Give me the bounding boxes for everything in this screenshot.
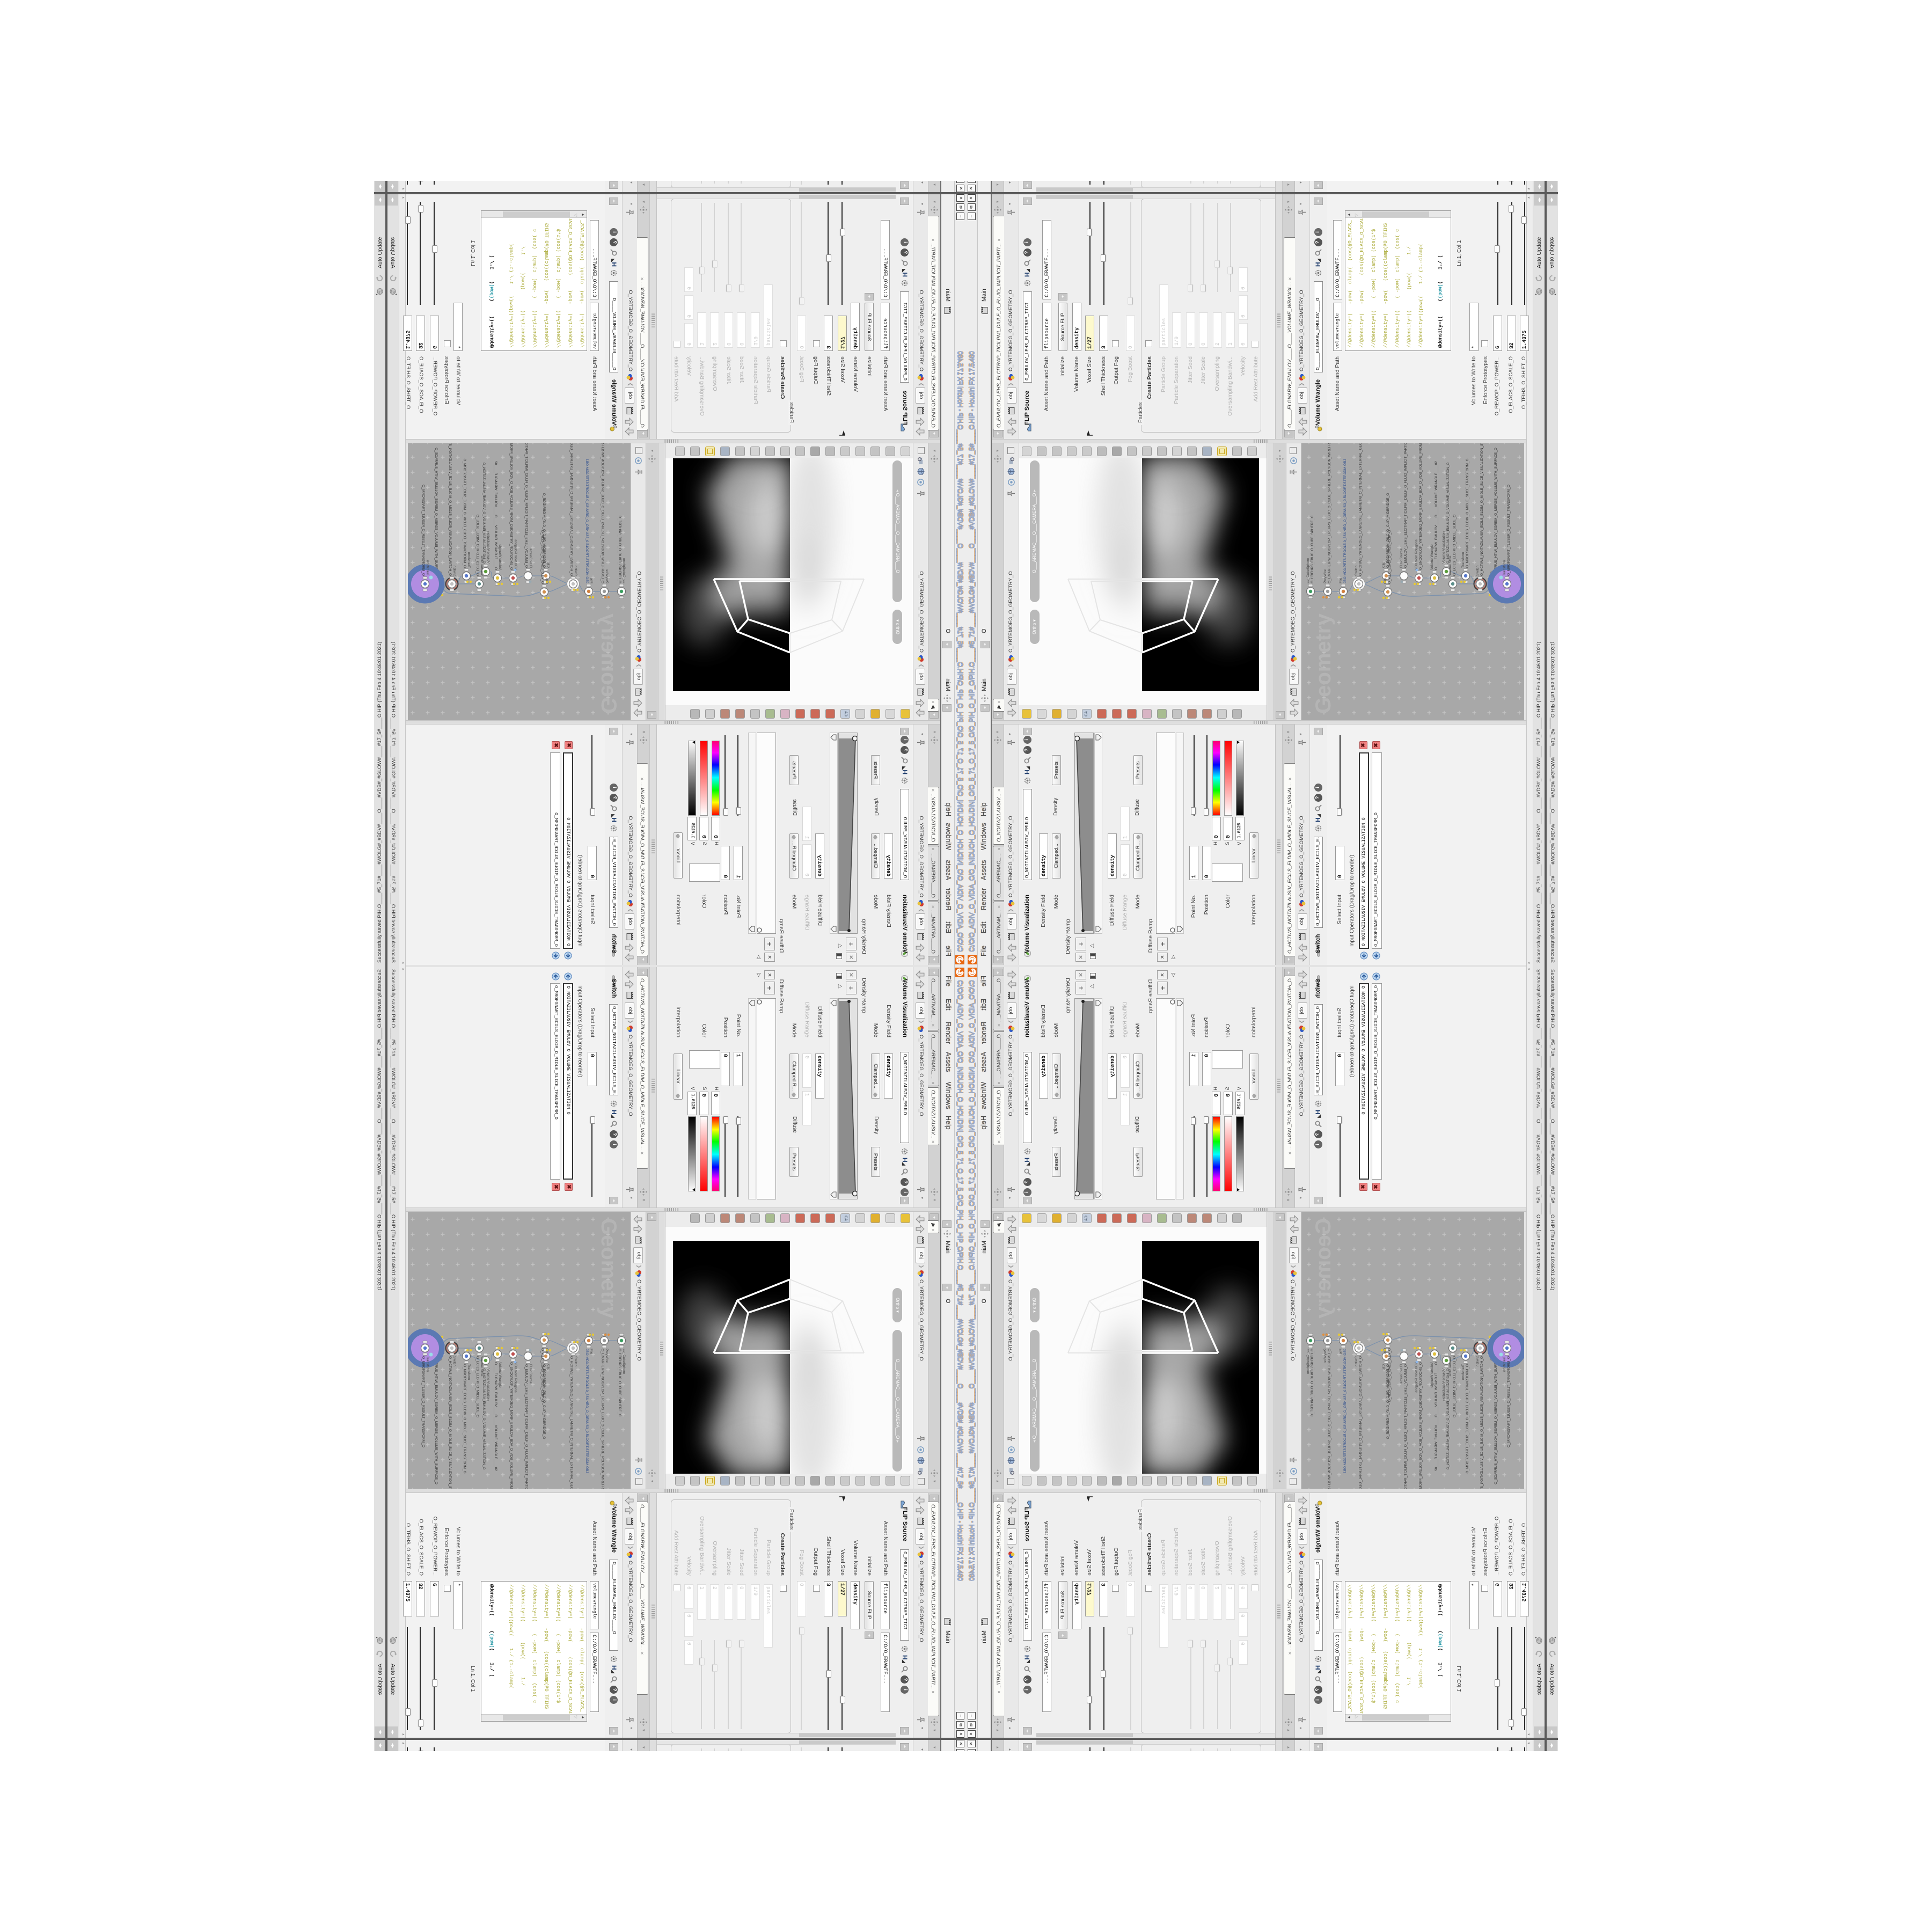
svg-text:Clip: Clip [1384,1348,1387,1355]
svg-text:O____ELGNARW_EMULOV____O____VO: O____ELGNARW_EMULOV____O____VOLUME_WRANG… [494,1362,497,1471]
svg-text:O_ECAFRUS_HTIW_EMULOV_EGREM_O_: O_ECAFRUS_HTIW_EMULOV_EGREM_O_MERGE_VOLU… [434,448,438,581]
svg-text:Transform: Transform [1503,560,1506,576]
svg-text:Volume Visualization: Volume Visualization [1442,1368,1446,1401]
svg-text:O_EMULOV_LEHS_ELCITRAP_TICILPM: O_EMULOV_LEHS_ELCITRAP_TICILPMI_DIULF_O_… [1404,1364,1408,1489]
svg-text:Switch: Switch [1476,1356,1480,1367]
svg-text:JBO.MD3.PETS.TRGOL5.0_3SUNEG_O: JBO.MD3.PETS.TRGOL5.0_3SUNEG_O_GENUS3_0.… [1343,1349,1347,1473]
svg-text:Volume Visualization: Volume Visualization [486,531,490,563]
svg-text:Switch: Switch [1476,565,1480,576]
svg-text:Transform: Transform [426,1356,429,1372]
svg-text:Geometry: Geometry [1312,1218,1335,1319]
svg-text:Switch: Switch [452,565,456,576]
svg-text:Switch: Switch [574,565,577,576]
svg-text:VDB from Polygons: VDB from Polygons [1415,539,1418,570]
svg-text:O_NOITAZILAUSIV_EMULOV_O_VOLUM: O_NOITAZILAUSIV_EMULOV_O_VOLUME_VISUALIZ… [1446,463,1450,563]
svg-text:O_ECAFRUS_HTIW_EMULOV_EGREM_O_: O_ECAFRUS_HTIW_EMULOV_EGREM_O_MERGE_VOLU… [434,1351,438,1484]
svg-text:Volume Slice: Volume Slice [480,1356,484,1377]
svg-text:ae_CubeSphere: ae_CubeSphere [1306,558,1310,583]
svg-text:O_HCTIWS_YRTEMOEG_LANRETXE_LAN: O_HCTIWS_YRTEMOEG_LANRETXE_LANRETNI_O_IN… [569,1356,573,1489]
svg-text:Transform: Transform [1503,1356,1506,1372]
svg-text:JBO.MD3.PETS.TRGOL5.0_3SUNEG_O: JBO.MD3.PETS.TRGOL5.0_3SUNEG_O_GENUS3_0.… [585,459,589,583]
svg-text:Clip: Clip [1382,1364,1386,1371]
svg-text:O_EREHPS_EBUC_O_CUBE_SPHERE_O: O_EREHPS_EBUC_O_CUBE_SPHERE_O [1311,1349,1314,1416]
svg-text:Clip: Clip [1382,561,1386,568]
svg-text:O_PILC_ESAB_O_BASE_CLIP_O: O_PILC_ESAB_O_BASE_CLIP_O [1388,1348,1392,1402]
svg-text:File: File [589,1349,593,1355]
svg-text:FLIP Source: FLIP Source [1400,548,1403,568]
svg-text:O_EMARFERIW_NOGYLOP_EREHPS_EBU: O_EMARFERIW_NOGYLOP_EREHPS_EBUC_O_CUBE_S… [1328,443,1331,583]
svg-text:O_MROFSNART_TLUSER_O_RESULT_TR: O_MROFSNART_TLUSER_O_RESULT_TRANSFORM_O [1507,1356,1511,1447]
svg-text:O_SNOGYLOP_YRTEMOEG_MORF_EMULO: O_SNOGYLOP_YRTEMOEG_MORF_EMULOV_BDV_O_VD… [509,1362,513,1489]
svg-text:O_HCTIWS_YRTEMOEG_LANRETXE_LAN: O_HCTIWS_YRTEMOEG_LANRETXE_LANRETNI_O_IN… [569,443,573,576]
svg-text:O_NOITAZILAUSIV_EMULOV_O_VOLUM: O_NOITAZILAUSIV_EMULOV_O_VOLUME_VISUALIZ… [482,1368,486,1469]
svg-text:O_ECAFRUS_HTIW_EMULOV_EGREM_O_: O_ECAFRUS_HTIW_EMULOV_EGREM_O_MERGE_VOLU… [1494,448,1498,581]
svg-text:FLIP Source: FLIP Source [1400,1364,1403,1384]
svg-text:O_NOITAZILAUSIV_EMULOV_O_VOLUM: O_NOITAZILAUSIV_EMULOV_O_VOLUME_VISUALIZ… [1446,1368,1450,1469]
svg-text:O____ELGNARW_EMULOV____O____VO: O____ELGNARW_EMULOV____O____VOLUME_WRANG… [1435,461,1438,570]
svg-text:O_MROFSNART_TLUSER_O_RESULT_TR: O_MROFSNART_TLUSER_O_RESULT_TRANSFORM_O [421,485,425,576]
svg-text:O_EMARFERIW_NOGYLOP_EREHPS_EBU: O_EMARFERIW_NOGYLOP_EREHPS_EBUC_O_CUBE_S… [601,443,604,583]
svg-text:Transform: Transform [1461,552,1465,568]
svg-text:Switch: Switch [1355,565,1358,576]
svg-text:File: File [589,577,593,583]
svg-text:Volume Slice: Volume Slice [1448,1356,1452,1377]
svg-text:O_ECAFRUS_HTIW_EMULOV_EGREM_O_: O_ECAFRUS_HTIW_EMULOV_EGREM_O_MERGE_VOLU… [1494,1351,1498,1484]
svg-text:Volume Wrangle: Volume Wrangle [498,544,502,570]
svg-text:PolyWire: PolyWire [1323,569,1327,583]
svg-text:Volume Slice: Volume Slice [1448,555,1452,576]
svg-text:O_EMULOV_LEHS_ELCITRAP_TICILPM: O_EMULOV_LEHS_ELCITRAP_TICILPMI_DIULF_O_… [524,1364,528,1489]
svg-text:File: File [1339,1349,1343,1355]
svg-text:O_PILC_ESAB_O_BASE_CLIP_O: O_PILC_ESAB_O_BASE_CLIP_O [540,530,544,584]
svg-text:O_EREHPS_EBUC_O_CUBE_SPHERE_O: O_EREHPS_EBUC_O_CUBE_SPHERE_O [1311,516,1314,583]
svg-text:VDB from Polygons: VDB from Polygons [1415,1362,1418,1393]
svg-text:Volume Slice: Volume Slice [480,555,484,576]
svg-text:O_HCTIWS_NOITAZILAUSIV_ECILS_E: O_HCTIWS_NOITAZILAUSIV_ECILS_ELDIM_O_MID… [448,1356,452,1489]
svg-text:O____ELGNARW_EMULOV____O____VO: O____ELGNARW_EMULOV____O____VOLUME_WRANG… [494,461,497,570]
svg-text:O_HCTIWS_NOITAZILAUSIV_ECILS_E: O_HCTIWS_NOITAZILAUSIV_ECILS_ELDIM_O_MID… [1480,1356,1484,1489]
svg-text:O_SNOGYLOP_YRTEMOEG_MORF_EMULO: O_SNOGYLOP_YRTEMOEG_MORF_EMULOV_BDV_O_VD… [1419,443,1423,570]
svg-text:Transform: Transform [467,552,471,568]
svg-text:O_HCTIWS_YRTEMOEG_LANRETXE_LAN: O_HCTIWS_YRTEMOEG_LANRETXE_LANRETNI_O_IN… [1359,443,1363,576]
svg-text:O_MROFSNART_TLUSER_O_RESULT_TR: O_MROFSNART_TLUSER_O_RESULT_TRANSFORM_O [421,1356,425,1447]
svg-text:VDB from Polygons: VDB from Polygons [514,539,517,570]
svg-text:O_MROFSNART_ECILS_ELDIM_O_MIDL: O_MROFSNART_ECILS_ELDIM_O_MIDLE_SLICE_TR… [463,1364,466,1474]
svg-text:Switch: Switch [452,1356,456,1367]
svg-text:ae_CubeSphere: ae_CubeSphere [1306,1349,1310,1374]
svg-text:O_EMULOV_LEHS_ELCITRAP_TICILPM: O_EMULOV_LEHS_ELCITRAP_TICILPMI_DIULF_O_… [1404,443,1408,568]
svg-text:O_EMULOV_LEHS_ELCITRAP_TICILPM: O_EMULOV_LEHS_ELCITRAP_TICILPMI_DIULF_O_… [524,443,528,568]
svg-text:ae_CubeSphere: ae_CubeSphere [622,1349,626,1374]
svg-text:Volume Wrangle: Volume Wrangle [1430,1362,1434,1388]
svg-text:Volume Wrangle: Volume Wrangle [498,1362,502,1388]
svg-text:O____ELGNARW_EMULOV____O____VO: O____ELGNARW_EMULOV____O____VOLUME_WRANG… [1435,1362,1438,1471]
svg-text:O_HCTIWS_YRTEMOEG_LANRETXE_LAN: O_HCTIWS_YRTEMOEG_LANRETXE_LANRETNI_O_IN… [1359,1356,1363,1489]
svg-text:Switch: Switch [574,1356,577,1367]
svg-text:Volume Visualization: Volume Visualization [1442,531,1446,563]
svg-text:O_ECILS_ELDIM_O_MIDLE_SLICE_O: O_ECILS_ELDIM_O_MIDLE_SLICE_O [1453,1356,1457,1417]
svg-text:FLIP Source: FLIP Source [529,1364,532,1384]
svg-text:FLIP Source: FLIP Source [529,548,532,568]
svg-text:ae_CubeSphere: ae_CubeSphere [622,558,626,583]
svg-text:O_NOITAZILAUSIV_EMULOV_O_VOLUM: O_NOITAZILAUSIV_EMULOV_O_VOLUME_VISUALIZ… [482,463,486,563]
svg-text:PolyWire: PolyWire [605,569,609,583]
svg-text:Clip: Clip [545,1348,548,1355]
svg-text:PolyWire: PolyWire [605,1349,609,1363]
svg-text:O_SNOGYLOP_YRTEMOEG_MORF_EMULO: O_SNOGYLOP_YRTEMOEG_MORF_EMULOV_BDV_O_VD… [1419,1362,1423,1489]
svg-text:Volume Visualization: Volume Visualization [486,1368,490,1401]
svg-text:O_MROFSNART_ECILS_ELDIM_O_MIDL: O_MROFSNART_ECILS_ELDIM_O_MIDLE_SLICE_TR… [463,458,466,568]
svg-text:Clip: Clip [545,577,548,584]
svg-text:JBO.MD3.PETS.TRGOL5.0_3SUNEG_O: JBO.MD3.PETS.TRGOL5.0_3SUNEG_O_GENUS3_0.… [1343,459,1347,583]
svg-text:Transform: Transform [1461,1364,1465,1380]
svg-text:O_EREHPS_EBUC_O_CUBE_SPHERE_O: O_EREHPS_EBUC_O_CUBE_SPHERE_O [618,516,621,583]
svg-text:Geometry: Geometry [597,1218,620,1319]
svg-text:O_EMARFERIW_NOGYLOP_EREHPS_EBU: O_EMARFERIW_NOGYLOP_EREHPS_EBUC_O_CUBE_S… [1328,1349,1331,1489]
svg-text:JBO.MD3.PETS.TRGOL5.0_3SUNEG_O: JBO.MD3.PETS.TRGOL5.0_3SUNEG_O_GENUS3_0.… [585,1349,589,1473]
svg-text:O_HCTIWS_NOITAZILAUSIV_ECILS_E: O_HCTIWS_NOITAZILAUSIV_ECILS_ELDIM_O_MID… [448,443,452,576]
svg-text:O_HCTIWS_NOITAZILAUSIV_ECILS_E: O_HCTIWS_NOITAZILAUSIV_ECILS_ELDIM_O_MID… [1480,443,1484,576]
svg-text:O_MROFSNART_TLUSER_O_RESULT_TR: O_MROFSNART_TLUSER_O_RESULT_TRANSFORM_O [1507,485,1511,576]
svg-text:O_ECILS_ELDIM_O_MIDLE_SLICE_O: O_ECILS_ELDIM_O_MIDLE_SLICE_O [1453,515,1457,576]
svg-text:Volume Wrangle: Volume Wrangle [1430,544,1434,570]
svg-text:Switch: Switch [1355,1356,1358,1367]
svg-text:O_PILC_ESAB_O_BASE_CLIP_O: O_PILC_ESAB_O_BASE_CLIP_O [1388,530,1392,584]
svg-text:O_PILC_ESAB_O_BASE_CLIP_O: O_PILC_ESAB_O_BASE_CLIP_O [540,1348,544,1402]
svg-text:Geometry: Geometry [1312,613,1335,714]
svg-text:VDB from Polygons: VDB from Polygons [514,1362,517,1393]
svg-text:File: File [1339,577,1343,583]
svg-text:O_SNOGYLOP_YRTEMOEG_MORF_EMULO: O_SNOGYLOP_YRTEMOEG_MORF_EMULOV_BDV_O_VD… [509,443,513,570]
svg-text:O_ECILS_ELDIM_O_MIDLE_SLICE_O: O_ECILS_ELDIM_O_MIDLE_SLICE_O [475,1356,479,1417]
svg-text:PolyWire: PolyWire [1323,1349,1327,1363]
svg-text:Clip: Clip [546,1364,550,1371]
svg-text:O_MROFSNART_ECILS_ELDIM_O_MIDL: O_MROFSNART_ECILS_ELDIM_O_MIDLE_SLICE_TR… [1466,458,1469,568]
svg-text:O_ECILS_ELDIM_O_MIDLE_SLICE_O: O_ECILS_ELDIM_O_MIDLE_SLICE_O [475,515,479,576]
svg-text:Transform: Transform [467,1364,471,1380]
svg-text:O_MROFSNART_ECILS_ELDIM_O_MIDL: O_MROFSNART_ECILS_ELDIM_O_MIDLE_SLICE_TR… [1466,1364,1469,1474]
svg-text:O_EMARFERIW_NOGYLOP_EREHPS_EBU: O_EMARFERIW_NOGYLOP_EREHPS_EBUC_O_CUBE_S… [601,1349,604,1489]
svg-text:Clip: Clip [546,561,550,568]
svg-text:Transform: Transform [426,560,429,576]
svg-text:Geometry: Geometry [597,613,620,714]
svg-text:O_EREHPS_EBUC_O_CUBE_SPHERE_O: O_EREHPS_EBUC_O_CUBE_SPHERE_O [618,1349,621,1416]
svg-text:Clip: Clip [1384,577,1387,584]
